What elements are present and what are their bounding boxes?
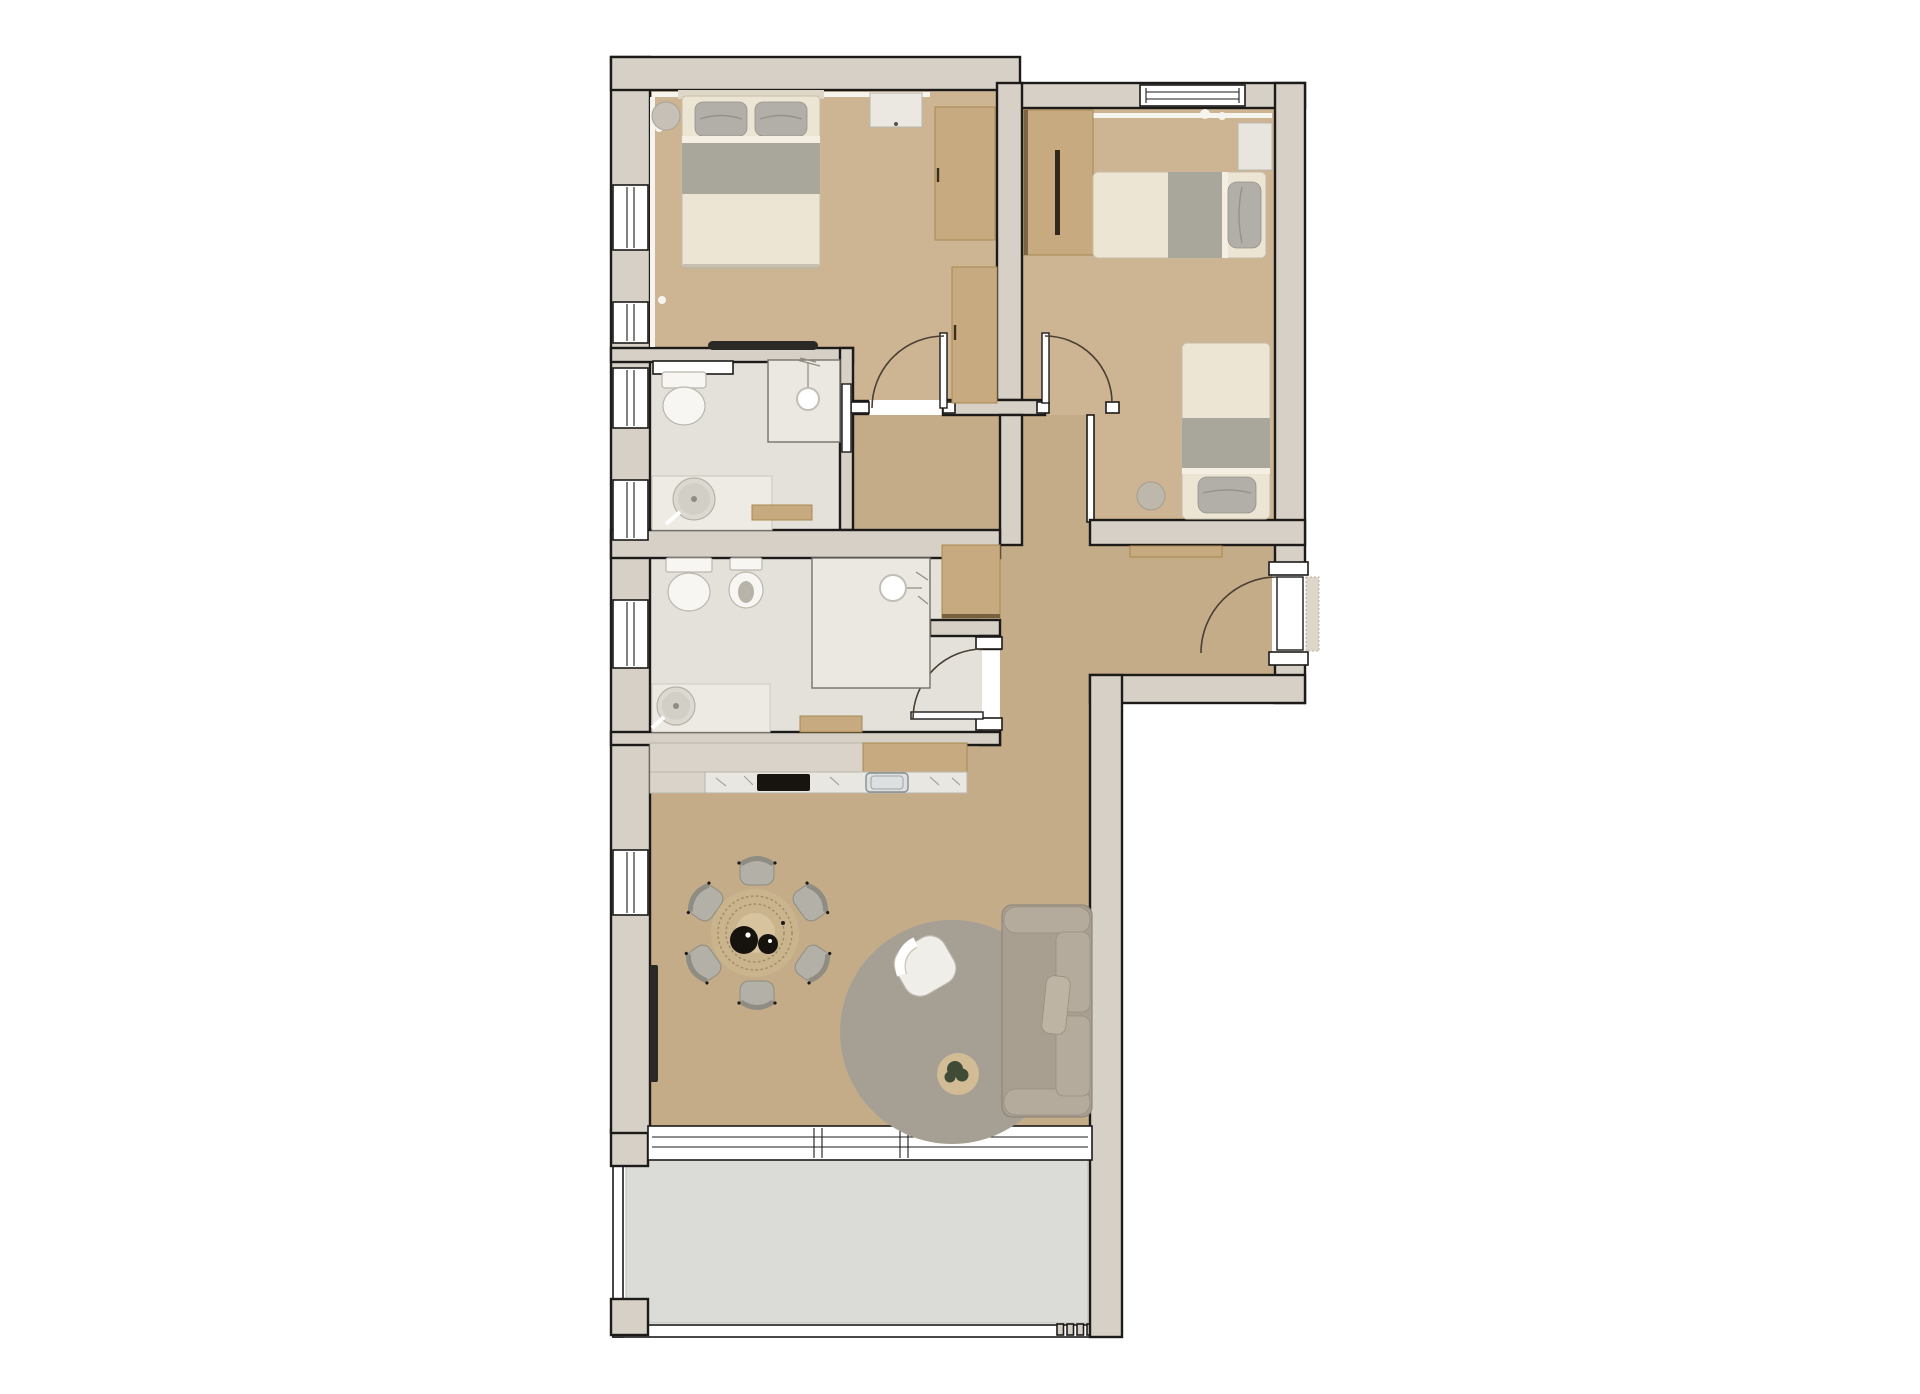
kitchen-wood-counter	[863, 743, 967, 772]
bed-foot-shadow	[683, 264, 819, 269]
radiator-living	[650, 965, 658, 1082]
sheet-fold	[1222, 172, 1228, 258]
terrace-rail-bottom	[613, 1325, 1090, 1337]
kitchen-back-cabinet	[650, 743, 863, 772]
tray	[730, 926, 758, 954]
bathroom1-sliding-door	[842, 384, 851, 452]
wardrobe-corridor	[952, 267, 997, 403]
pillow	[695, 102, 747, 136]
terrace-pier-top-left	[611, 1130, 648, 1166]
blanket	[1168, 172, 1222, 258]
door-jamb	[976, 637, 1002, 649]
door-leaf	[911, 712, 983, 719]
sofa-armrest	[1004, 907, 1090, 933]
dining-table	[711, 889, 799, 977]
window-living	[613, 850, 648, 915]
basin-drain	[673, 703, 679, 709]
door-jamb	[851, 402, 869, 413]
toilet-bowl	[663, 387, 705, 425]
shower	[812, 558, 930, 688]
floor-plan-page	[0, 0, 1920, 1394]
toilet-tank	[662, 372, 706, 388]
wall-top-west	[611, 57, 1020, 90]
pillow	[755, 102, 807, 136]
window-bath1-2	[613, 480, 648, 540]
toilet	[666, 558, 712, 611]
shower	[768, 358, 840, 442]
curtain-fabric	[1218, 112, 1226, 120]
door-leaf	[1277, 577, 1303, 650]
wood-bench	[752, 505, 812, 520]
wall-niche-south	[930, 620, 1000, 636]
wardrobe-bedroom2	[1024, 110, 1093, 255]
curtain-rail-left	[650, 97, 655, 347]
door-jamb	[1269, 562, 1308, 575]
wall-right-lower	[1090, 675, 1122, 1337]
shower-head	[880, 575, 906, 601]
wall-bedroom2-south	[1090, 520, 1305, 545]
window-facade-south	[648, 1126, 1092, 1160]
kitchen-end-cabinet	[650, 772, 705, 793]
wardrobe-handle	[1055, 150, 1060, 235]
curtain-fabric	[658, 296, 666, 304]
double-bed	[678, 90, 824, 269]
curtain-fabric	[1200, 109, 1210, 119]
sheet-fold	[1182, 468, 1270, 474]
blanket	[682, 143, 820, 194]
wall-vestibule-east-thin	[1087, 415, 1094, 522]
kitchen	[650, 743, 967, 793]
toilet-tank	[666, 558, 712, 572]
wardrobe-shadow-edge	[1024, 110, 1028, 255]
window-bedroom2-top	[1140, 85, 1245, 106]
terrace	[611, 1130, 1121, 1337]
tall-cabinet	[942, 545, 1000, 618]
single-bed-2	[1182, 343, 1270, 519]
floor-plan-canvas	[0, 0, 1920, 1394]
toilet-bowl	[668, 573, 710, 611]
tray	[758, 934, 778, 954]
door-leaf	[1042, 333, 1049, 403]
sliding-door-panel	[842, 384, 851, 452]
wall-vestibule-west	[1000, 415, 1022, 545]
toilet	[662, 372, 706, 425]
window-bath1-1	[613, 368, 648, 428]
cooktop	[757, 774, 810, 791]
single-bed-1	[1093, 172, 1266, 258]
terrace-floor	[626, 1160, 1088, 1323]
blanket	[1182, 418, 1270, 468]
wardrobe-master	[935, 107, 995, 240]
door-leaf	[940, 333, 947, 408]
shower-tray	[812, 558, 930, 688]
basin-drain	[691, 496, 697, 502]
console-shelf	[1130, 546, 1222, 557]
ottoman	[652, 102, 680, 130]
door-jamb	[1106, 402, 1119, 413]
sheet-fold	[682, 136, 820, 143]
bidet-back	[730, 558, 762, 570]
dining-chair	[737, 859, 776, 886]
door-jamb	[976, 718, 1002, 730]
stool	[1137, 482, 1165, 510]
bidet	[729, 558, 763, 608]
window-master-2	[613, 302, 648, 343]
shower-head	[797, 388, 819, 410]
doormat	[1306, 577, 1319, 651]
dining-chair	[737, 981, 776, 1008]
nightstand-knob	[894, 122, 898, 126]
radiator-master	[708, 341, 818, 350]
wood-shelf	[800, 716, 862, 732]
nightstand	[870, 93, 922, 127]
kitchen-sink	[866, 773, 908, 792]
nightstand	[1238, 123, 1272, 170]
sofa	[1002, 905, 1092, 1117]
terrace-pier-bottom-left	[611, 1299, 648, 1335]
window-master-1	[613, 185, 648, 250]
door-jamb	[1269, 652, 1308, 665]
vanity	[652, 684, 770, 732]
bidet-inner	[738, 581, 754, 603]
window-bath2	[613, 600, 648, 668]
side-table-plant	[937, 1053, 979, 1095]
pillow	[1228, 182, 1261, 248]
pillow	[1198, 477, 1256, 513]
vanity	[652, 476, 772, 530]
duvet	[683, 194, 819, 266]
cabinet-front-edge	[942, 614, 1000, 618]
wall-bedrooms-divider	[997, 83, 1022, 400]
